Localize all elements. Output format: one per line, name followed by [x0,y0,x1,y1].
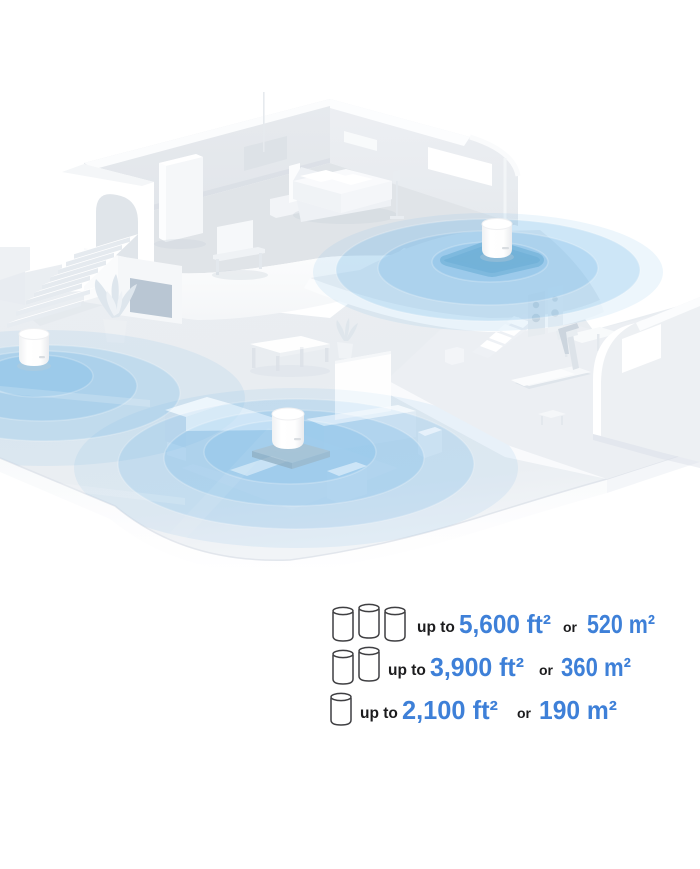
svg-text:3,900 ft²: 3,900 ft² [430,652,524,682]
svg-text:5,600 ft²: 5,600 ft² [459,609,551,639]
svg-text:190 m²: 190 m² [539,695,617,725]
svg-text:or: or [563,619,578,635]
svg-text:up to: up to [360,705,398,722]
svg-text:360 m²: 360 m² [561,652,631,682]
svg-text:or: or [517,705,532,721]
svg-text:up to: up to [417,619,455,636]
svg-text:520 m²: 520 m² [587,609,655,639]
svg-text:or: or [539,662,554,678]
svg-text:up to: up to [388,662,426,679]
svg-text:2,100 ft²: 2,100 ft² [402,695,498,725]
